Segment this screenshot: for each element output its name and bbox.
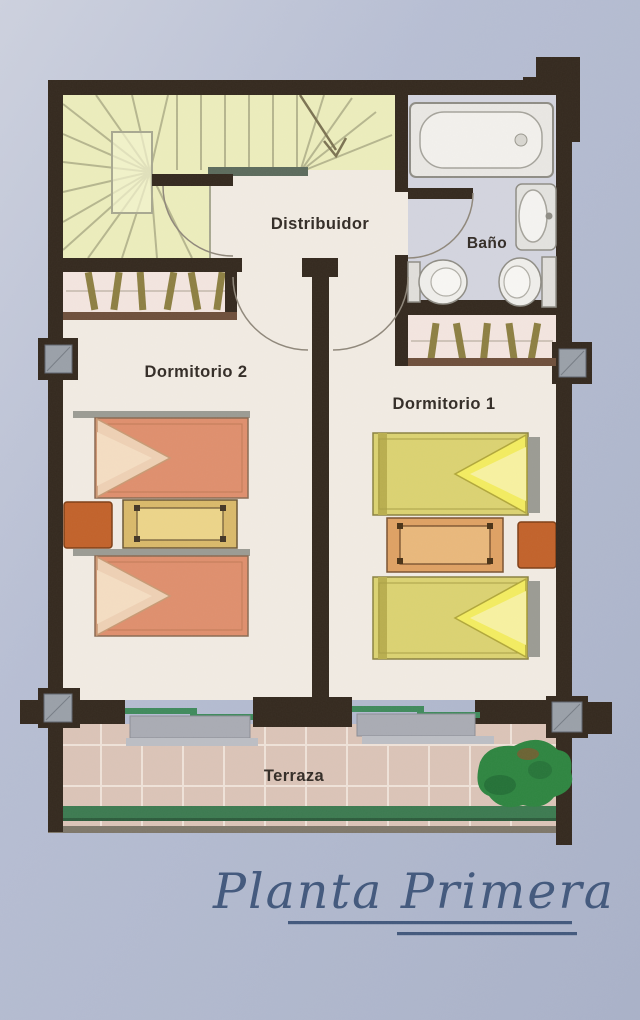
wall-dorm2-north xyxy=(63,258,242,272)
bidet xyxy=(408,260,467,304)
room-label-dormitorio1: Dormitorio 1 xyxy=(393,395,496,413)
wall-right xyxy=(556,140,572,703)
washbasin xyxy=(516,184,556,250)
wall-south-right xyxy=(475,700,556,724)
wardrobe-dorm1-front xyxy=(408,358,556,366)
dorm2-stool xyxy=(64,502,112,548)
dorm2-nightstand xyxy=(123,500,237,548)
wall-left xyxy=(48,80,63,703)
wall-wardrobe2-cap xyxy=(225,258,237,318)
room-label-dormitorio2: Dormitorio 2 xyxy=(145,363,248,381)
bath-door-leaf xyxy=(408,188,473,199)
wall-top xyxy=(48,80,556,95)
room-label-bano: Baño xyxy=(467,235,507,252)
wall-bath-left-upper xyxy=(395,95,408,192)
bathtub xyxy=(410,103,553,177)
dorm1-headboard-b xyxy=(528,581,540,657)
stair-door-leaf xyxy=(152,174,233,186)
dorm1-headboard-a xyxy=(528,437,540,513)
dorm1-stool xyxy=(518,522,556,568)
title-underline-1 xyxy=(288,921,572,924)
stair-inner-well xyxy=(112,132,152,213)
room-label-distribuidor: Distribuidor xyxy=(271,215,369,233)
wardrobe-dorm2-front xyxy=(63,312,237,320)
title-underline-2 xyxy=(397,932,577,935)
floor-plan-svg: Distribuidor Baño Dormitorio 2 Dormitori… xyxy=(0,0,640,1020)
plan-title: Planta Primera xyxy=(212,863,615,920)
terrace-railing-shadow xyxy=(63,818,556,821)
floor-plan: Distribuidor Baño Dormitorio 2 Dormitori… xyxy=(0,0,640,1020)
toilet xyxy=(499,257,556,307)
washbasin-faucet-icon xyxy=(546,213,553,220)
room-label-terraza: Terraza xyxy=(264,767,325,785)
plant-pot-spot xyxy=(517,748,539,760)
wall-south-middle xyxy=(253,697,352,727)
terrace-slab-edge xyxy=(48,826,572,833)
dorm2-headboard-bottom xyxy=(73,549,250,556)
dorm2-headboard-top xyxy=(73,411,250,418)
terrace-railing xyxy=(63,806,556,818)
wall-central xyxy=(312,277,329,702)
bathtub-drain-icon xyxy=(515,134,527,146)
dorm1-nightstand xyxy=(387,518,503,572)
wall-central-cap xyxy=(302,258,338,277)
